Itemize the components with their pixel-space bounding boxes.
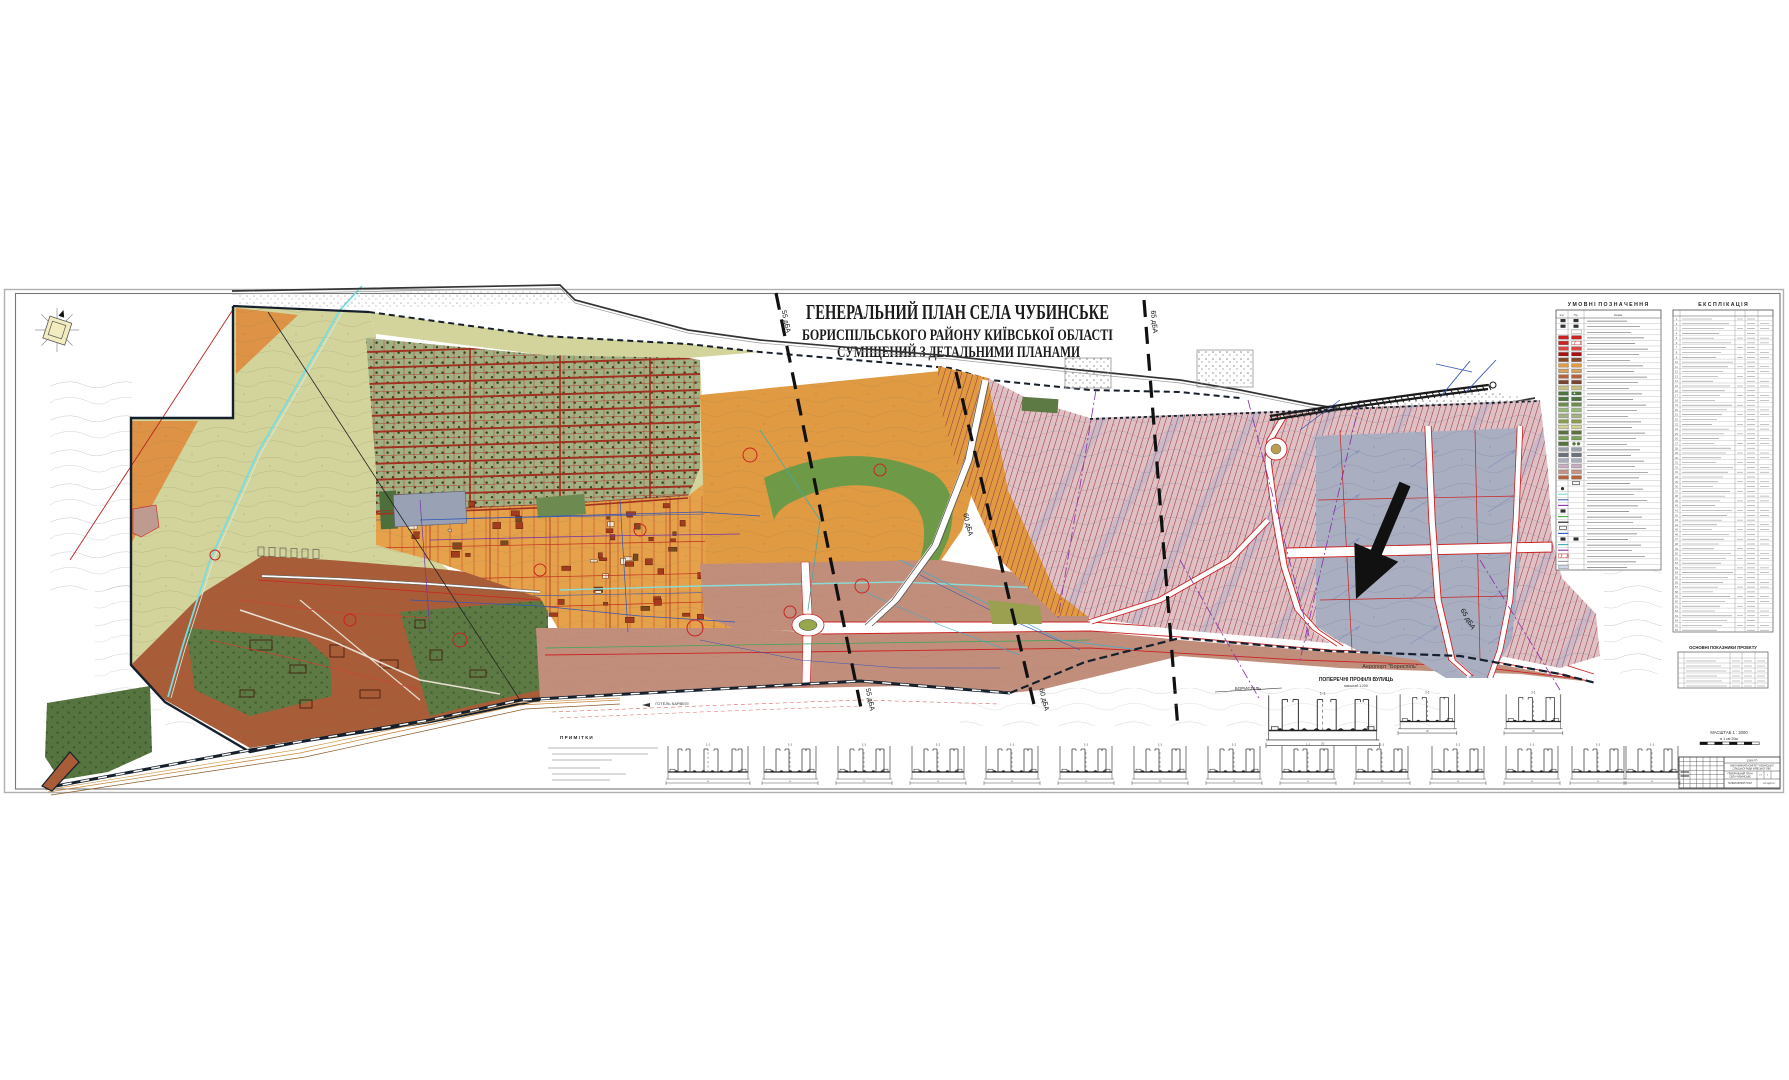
svg-text:Пр.: Пр.	[1574, 313, 1579, 317]
svg-text:1-1: 1-1	[862, 743, 867, 747]
svg-text:Існ.: Існ.	[1560, 313, 1565, 317]
svg-text:Е К С П Л І К А Ц І Я: Е К С П Л І К А Ц І Я	[1698, 302, 1748, 308]
svg-text:1-1: 1-1	[1306, 743, 1311, 747]
svg-text:1-1: 1-1	[1650, 743, 1655, 747]
svg-text:ГОТЕЛЬ КАРВЕЛІ: ГОТЕЛЬ КАРВЕЛІ	[655, 701, 688, 706]
svg-text:ПОПЕРЕЧНІ ПРОФІЛІ ВУЛИЦЬ: ПОПЕРЕЧНІ ПРОФІЛІ ВУЛИЦЬ	[1319, 677, 1394, 683]
svg-text:Аеропорт "Бориспіль": Аеропорт "Бориспіль"	[1362, 664, 1418, 670]
svg-text:2069-ГП: 2069-ГП	[1747, 759, 1758, 763]
svg-text:СЕЛА ЧУБИНСЬКЕ: СЕЛА ЧУБИНСЬКЕ	[1729, 776, 1751, 779]
svg-text:СІЛЬСЬКОЇ РАДИ КИЇВСЬКОЇ ОБЛ.: СІЛЬСЬКОЇ РАДИ КИЇВСЬКОЇ ОБЛ.	[1732, 768, 1772, 771]
svg-text:У М О В Н І П О З Н А Ч Е Н Н: У М О В Н І П О З Н А Ч Е Н Н Я	[1568, 302, 1649, 308]
svg-text:1-1: 1-1	[1084, 743, 1089, 747]
svg-text:1-1: 1-1	[706, 743, 711, 747]
svg-text:1-1: 1-1	[1232, 743, 1237, 747]
svg-text:ГЕНЕРАЛЬНИЙ ПЛАН СЕЛА ЧУБИНСЬК: ГЕНЕРАЛЬНИЙ ПЛАН СЕЛА ЧУБИНСЬКЕ	[806, 300, 1109, 324]
svg-text:1-1: 1-1	[1158, 743, 1163, 747]
svg-text:1-1: 1-1	[1530, 743, 1535, 747]
svg-text:1-1: 1-1	[1320, 691, 1327, 696]
svg-text:ОСНОВНІ ПОКАЗНИКИ ПРОЕКТУ: ОСНОВНІ ПОКАЗНИКИ ПРОЕКТУ	[1689, 645, 1757, 650]
svg-text:1-1: 1-1	[1425, 691, 1430, 695]
svg-text:в 1 см 20м: в 1 см 20м	[1720, 737, 1738, 741]
svg-text:П Р И М І Т К И: П Р И М І Т К И	[560, 735, 593, 740]
svg-text:1-1: 1-1	[788, 743, 793, 747]
svg-text:МАСШТАБ 1 : 2000: МАСШТАБ 1 : 2000	[1710, 730, 1748, 735]
svg-text:1-1: 1-1	[1010, 743, 1015, 747]
svg-text:БОРИСПІЛЬСЬКОГО РАЙОНУ КИЇВСЬК: БОРИСПІЛЬСЬКОГО РАЙОНУ КИЇВСЬКОЇ ОБЛАСТІ	[802, 327, 1113, 344]
svg-text:1-1: 1-1	[1380, 743, 1385, 747]
svg-text:УКРНДІПРО: УКРНДІПРО	[1763, 783, 1776, 785]
svg-text:1-1: 1-1	[936, 743, 941, 747]
svg-text:Назва: Назва	[1614, 313, 1623, 317]
svg-text:масштаб 1:200: масштаб 1:200	[1344, 684, 1368, 688]
svg-text:1-1: 1-1	[1596, 743, 1601, 747]
svg-text:1-1: 1-1	[1456, 743, 1461, 747]
svg-text:20: 20	[1321, 741, 1325, 745]
svg-text:ГЕНЕРАЛЬНИЙ ПЛАН: ГЕНЕРАЛЬНИЙ ПЛАН	[1728, 782, 1752, 785]
svg-text:1-1: 1-1	[1531, 691, 1536, 695]
